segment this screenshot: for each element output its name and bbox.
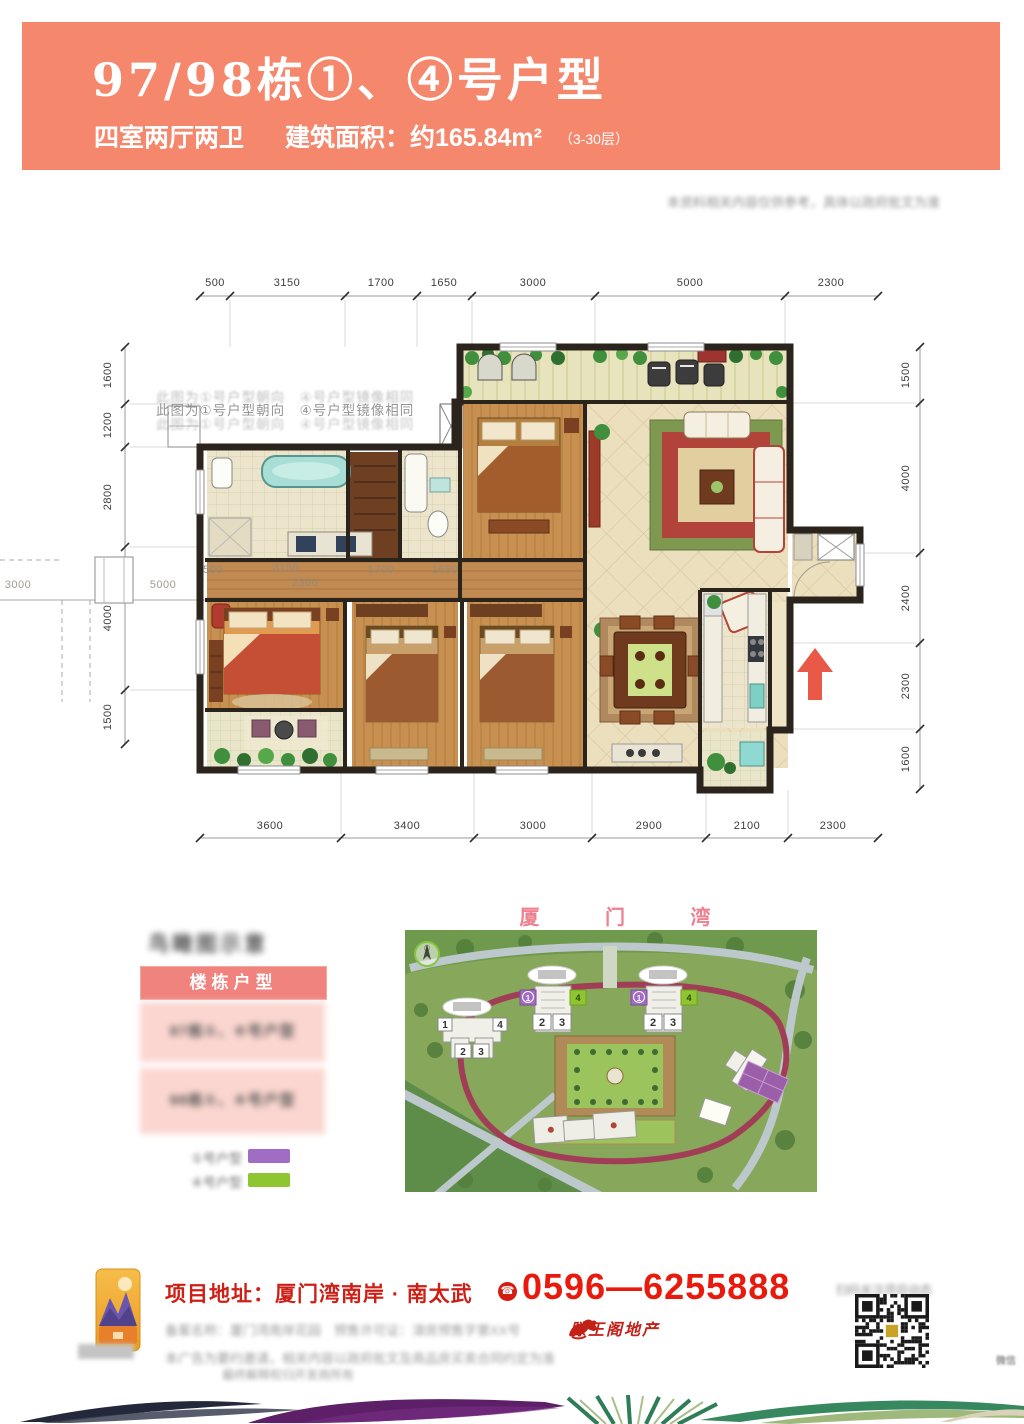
ghost-dim: 3000	[4, 579, 32, 591]
footer-line-1: 备案名称：厦门湾南岸花园 预售许可证：漳房预售字第XX号	[165, 1320, 557, 1339]
palm-leaves-decoration	[0, 1392, 1024, 1424]
svg-text:4: 4	[497, 1020, 503, 1031]
compass-icon: ①	[415, 942, 439, 966]
legend-swatch-green	[248, 1173, 290, 1187]
dim-right: 2400	[900, 584, 912, 612]
dim-right: 1500	[900, 361, 912, 389]
cad-artifacts	[0, 406, 212, 702]
phone-icon: ☎	[498, 1282, 517, 1301]
header-banner: 97/98栋①、④号户型 四室两厅两卫 建筑面积：约165.84m² （3-30…	[22, 22, 1000, 170]
legend-title: 鸟瞰图示意	[148, 928, 308, 958]
header-subtitle: 四室两厅两卫 建筑面积：约165.84m² （3-30层）	[94, 118, 629, 154]
dim-top: 2300	[817, 277, 845, 289]
legend-table-header: 楼栋户型	[140, 966, 327, 1000]
entry-hall-floor	[772, 602, 788, 728]
svg-text:2: 2	[650, 1017, 656, 1029]
svg-text:2: 2	[539, 1017, 545, 1029]
legend-row-1: 97栋①、④号户型	[140, 1002, 325, 1062]
ghost-dim: 500	[202, 564, 224, 576]
svg-text:1: 1	[526, 994, 531, 1003]
qr-center-logo	[885, 1324, 899, 1338]
floor-plan	[0, 260, 1024, 860]
svg-text:1: 1	[637, 994, 642, 1003]
dim-right: 4000	[900, 464, 912, 492]
footer-line-3: 最终解释权归开发商所有	[222, 1366, 442, 1383]
dim-bottom: 2300	[819, 820, 847, 832]
dim-top: 1700	[367, 277, 395, 289]
layout-spec: 四室两厅两卫	[94, 124, 244, 152]
ghost-dim: 1650	[431, 564, 459, 576]
dim-top: 3150	[273, 277, 301, 289]
svg-text:1: 1	[442, 1020, 448, 1031]
ghost-dim: 1700	[367, 564, 395, 576]
dim-top: 1650	[430, 277, 458, 289]
dim-bottom: 3000	[519, 820, 547, 832]
svg-text:4: 4	[686, 993, 691, 1003]
dim-top: 5000	[676, 277, 704, 289]
dim-bottom: 2100	[733, 820, 761, 832]
phone-number: 0596—6255888	[522, 1266, 790, 1308]
logo-caption-blurred	[78, 1344, 134, 1359]
legend-item-1-label: ①号户型	[170, 1148, 242, 1167]
flyer-page: 97/98栋①、④号户型 四室两厅两卫 建筑面积：约165.84m² （3-30…	[0, 0, 1024, 1424]
dim-left: 2800	[102, 483, 114, 511]
master-bedroom	[209, 604, 339, 710]
project-logo	[95, 1268, 141, 1352]
svg-text:3: 3	[670, 1017, 676, 1029]
legend-row-2: 98栋①、④号户型	[140, 1068, 325, 1134]
dim-left: 4000	[102, 604, 114, 632]
ghost-dim: 3150	[272, 562, 300, 574]
svg-text:3: 3	[478, 1047, 484, 1058]
page-title: 97/98栋①、④号户型	[92, 44, 607, 110]
bay-title: 厦 门 湾	[450, 901, 780, 930]
project-address: 项目地址：厦门湾南岸 · 南太武	[165, 1278, 473, 1308]
area-label: 建筑面积：约165.84m²	[285, 124, 542, 152]
dragon-logo-icon	[566, 1315, 600, 1341]
footer-line-2: 本广告为要约邀请，相关内容以政府批文及商品房买卖合同约定为准	[165, 1348, 565, 1367]
svg-text:①: ①	[423, 944, 430, 953]
legend-item-2-label: ④号户型	[170, 1172, 242, 1191]
svg-text:4: 4	[575, 993, 580, 1003]
dim-bottom: 3400	[393, 820, 421, 832]
site-map: 1 4 2 3 1 4 2 3	[405, 930, 817, 1192]
dim-bottom: 3600	[256, 820, 284, 832]
disclaimer-note: 本资料相关内容仅供参考，具体以政府批文为准	[660, 192, 940, 211]
svg-text:2: 2	[460, 1047, 466, 1058]
ghost-dim: 2300	[291, 577, 319, 589]
svg-text:3: 3	[559, 1017, 565, 1029]
dim-right: 2300	[900, 672, 912, 700]
dim-bottom: 2900	[635, 820, 663, 832]
entry-arrow-icon	[797, 648, 833, 700]
dim-top: 3000	[519, 277, 547, 289]
dim-left: 1600	[102, 361, 114, 389]
side-note: 微信	[996, 1352, 1016, 1367]
dim-right: 1600	[900, 745, 912, 773]
dim-left: 1200	[102, 411, 114, 439]
phone-block: ☎ 0596—6255888	[498, 1266, 790, 1308]
dim-left: 1500	[102, 703, 114, 731]
ghost-dim: 5000	[149, 579, 177, 591]
dim-top: 500	[204, 277, 226, 289]
legend-swatch-purple	[248, 1149, 290, 1163]
qr-code	[855, 1294, 929, 1368]
developer-brand: 滕王阁地产	[566, 1316, 660, 1340]
floors-note: （3-30层）	[559, 131, 629, 147]
